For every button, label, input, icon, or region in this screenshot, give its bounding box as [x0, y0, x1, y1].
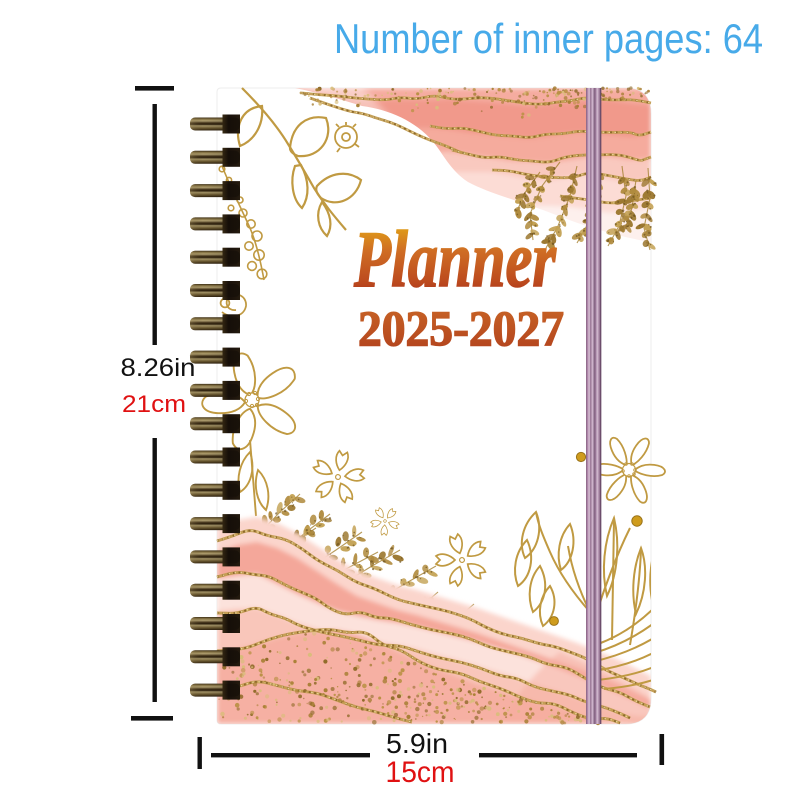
- svg-text:5.9in: 5.9in: [386, 728, 448, 759]
- svg-text:21cm: 21cm: [122, 391, 186, 418]
- svg-text:8.26in: 8.26in: [121, 354, 196, 382]
- svg-text:Number of inner pages: 64: Number of inner pages: 64: [334, 15, 763, 62]
- svg-text:15cm: 15cm: [386, 756, 455, 789]
- svg-text:Planner: Planner: [353, 216, 556, 304]
- svg-text:2025-2027: 2025-2027: [358, 300, 564, 356]
